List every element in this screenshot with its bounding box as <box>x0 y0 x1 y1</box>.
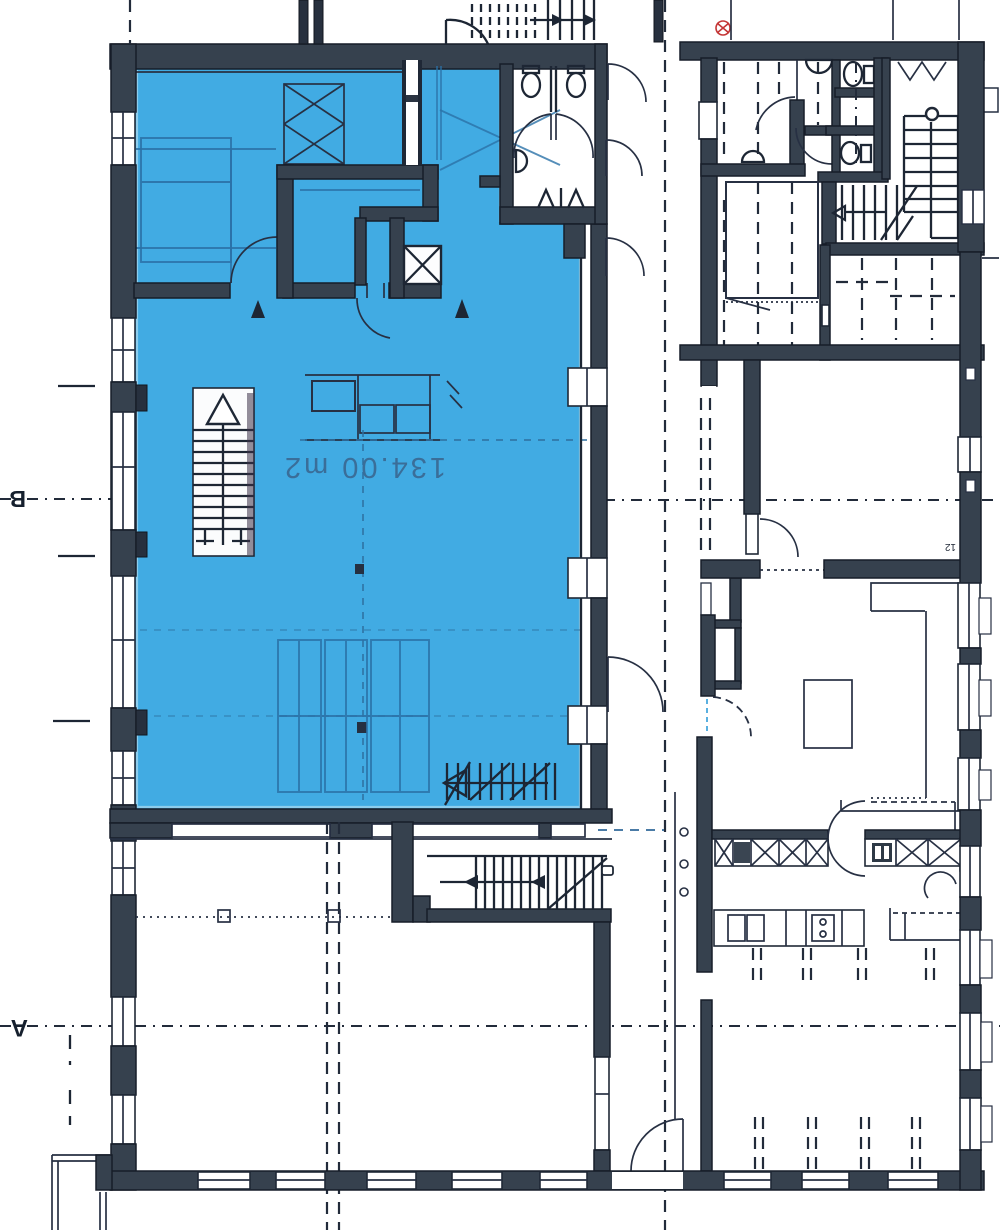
svg-text:A: A <box>11 1014 28 1041</box>
svg-text:134.00 m2: 134.00 m2 <box>282 451 446 483</box>
svg-text:B: B <box>9 486 26 512</box>
svg-text:12: 12 <box>944 541 956 552</box>
